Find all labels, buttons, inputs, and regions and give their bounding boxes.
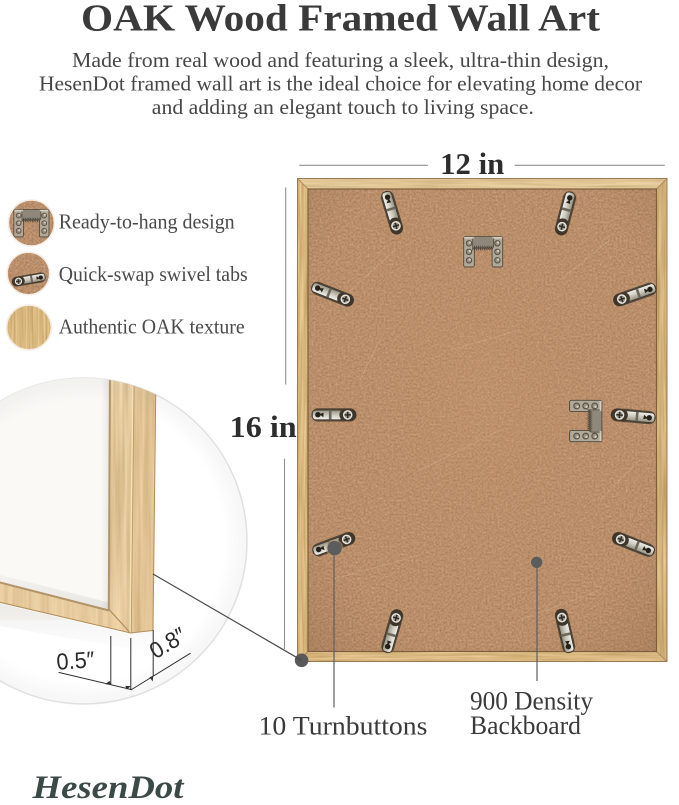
svg-text:12 in: 12 in: [440, 147, 504, 181]
svg-text:Backboard: Backboard: [470, 711, 581, 740]
svg-text:and adding an elegant touch to: and adding an elegant touch to living sp…: [152, 95, 534, 119]
svg-text:10 Turnbuttons: 10 Turnbuttons: [259, 712, 428, 741]
svg-text:Authentic OAK texture: Authentic OAK texture: [59, 315, 245, 339]
svg-text:0.5″: 0.5″: [56, 646, 96, 675]
svg-text:Quick-swap swivel tabs: Quick-swap swivel tabs: [59, 262, 248, 286]
svg-text:Made from real wood and featur: Made from real wood and featuring a slee…: [72, 48, 609, 72]
svg-text:HesenDot: HesenDot: [31, 770, 184, 805]
svg-text:HesenDot framed wall art is th: HesenDot framed wall art is the ideal ch…: [39, 71, 642, 95]
svg-text:Ready-to-hang design: Ready-to-hang design: [59, 209, 235, 233]
svg-text:OAK Wood Framed Wall Art: OAK Wood Framed Wall Art: [81, 0, 600, 40]
svg-text:16 in: 16 in: [230, 410, 297, 444]
